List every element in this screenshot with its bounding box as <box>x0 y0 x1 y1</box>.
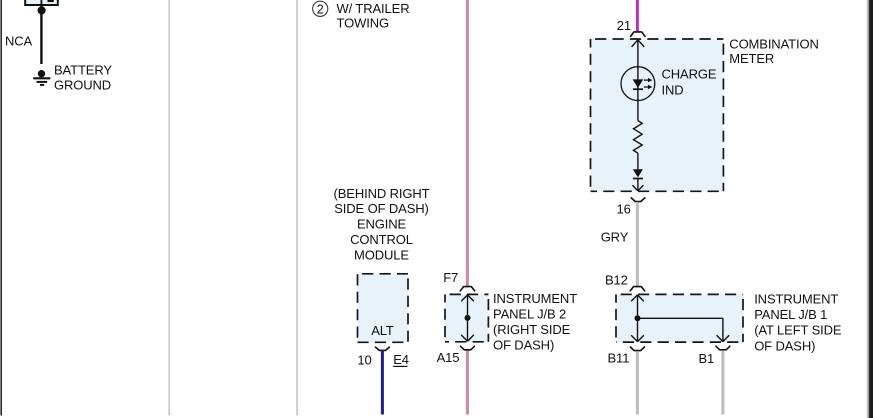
svg-text:BATTERY: BATTERY <box>54 62 112 77</box>
svg-text:TOWING: TOWING <box>337 16 389 31</box>
svg-text:OF DASH): OF DASH) <box>493 338 554 353</box>
svg-text:21: 21 <box>617 18 631 33</box>
svg-text:GRY: GRY <box>601 230 629 245</box>
svg-text:ENGINE: ENGINE <box>357 217 407 232</box>
svg-text:INSTRUMENT: INSTRUMENT <box>493 291 577 306</box>
svg-text:F7: F7 <box>443 270 458 285</box>
svg-text:16: 16 <box>617 201 631 216</box>
svg-text:B12: B12 <box>605 273 628 288</box>
svg-text:ALT: ALT <box>371 323 394 338</box>
svg-text:SIDE OF DASH): SIDE OF DASH) <box>334 201 429 216</box>
svg-text:PANEL J/B 1: PANEL J/B 1 <box>754 307 827 322</box>
svg-text:(RIGHT SIDE: (RIGHT SIDE <box>493 322 571 337</box>
svg-text:W/ TRAILER: W/ TRAILER <box>337 1 410 16</box>
svg-text:A15: A15 <box>437 350 460 365</box>
svg-text:NCA: NCA <box>5 34 33 49</box>
svg-text:(AT LEFT SIDE: (AT LEFT SIDE <box>754 323 842 338</box>
svg-text:10: 10 <box>357 353 371 368</box>
svg-text:B1: B1 <box>699 351 715 366</box>
svg-text:COMBINATION: COMBINATION <box>729 37 818 52</box>
svg-text:MODULE: MODULE <box>354 247 409 262</box>
svg-text:IND: IND <box>662 82 684 97</box>
svg-text:2: 2 <box>317 3 324 17</box>
svg-text:CHARGE: CHARGE <box>662 67 717 82</box>
svg-text:METER: METER <box>729 51 774 66</box>
svg-text:PANEL J/B 2: PANEL J/B 2 <box>493 307 566 322</box>
svg-text:CONTROL: CONTROL <box>350 232 413 247</box>
svg-text:INSTRUMENT: INSTRUMENT <box>754 292 838 307</box>
svg-text:(BEHIND RIGHT: (BEHIND RIGHT <box>334 186 430 201</box>
svg-text:OF DASH): OF DASH) <box>754 338 815 353</box>
svg-text:B11: B11 <box>608 350 630 365</box>
svg-text:E4: E4 <box>393 352 409 367</box>
svg-text:GROUND: GROUND <box>54 77 111 92</box>
